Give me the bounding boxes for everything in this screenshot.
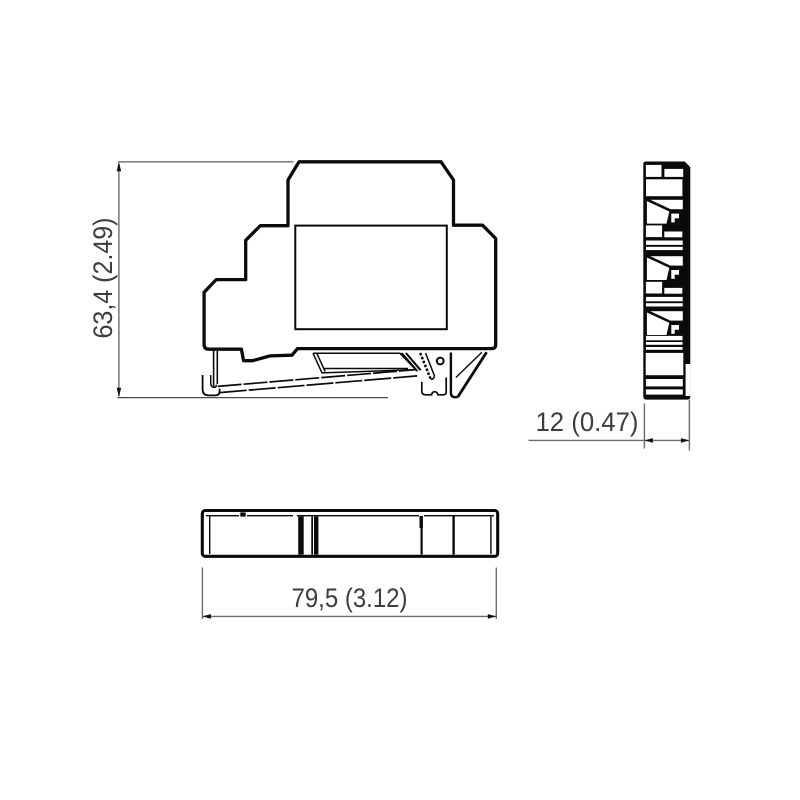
svg-text:79,5 (3.12): 79,5 (3.12) [292,583,408,613]
svg-text:63,4 (2.49): 63,4 (2.49) [88,218,118,339]
svg-text:12 (0.47): 12 (0.47) [536,407,639,437]
